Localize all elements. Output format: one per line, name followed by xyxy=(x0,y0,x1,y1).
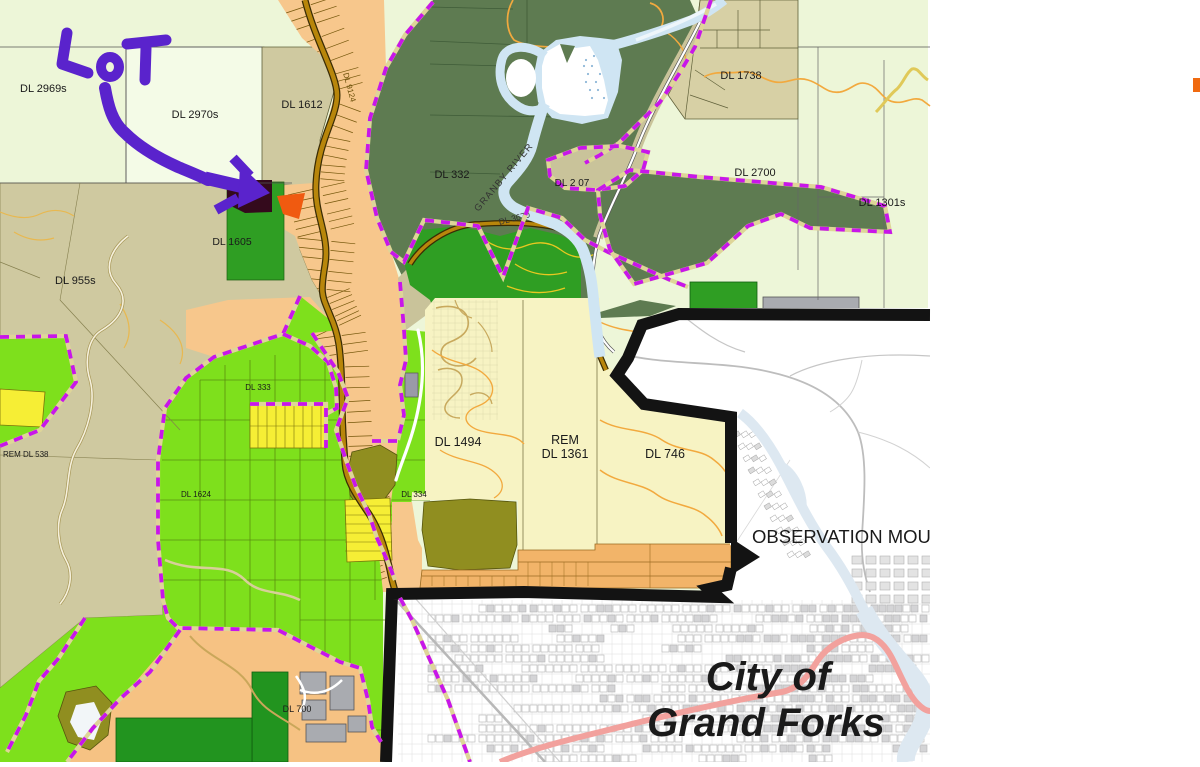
svg-text:DL 2 07: DL 2 07 xyxy=(555,178,590,189)
svg-text:DL 1605: DL 1605 xyxy=(212,236,251,248)
svg-text:DL 332: DL 332 xyxy=(434,169,469,181)
svg-text:City of: City of xyxy=(706,655,834,699)
svg-text:DL 2970s: DL 2970s xyxy=(172,109,219,121)
svg-text:DL 334: DL 334 xyxy=(401,490,427,499)
svg-text:REM DL 538: REM DL 538 xyxy=(3,450,49,459)
svg-text:DL 2969s: DL 2969s xyxy=(20,83,67,95)
svg-text:DL 1738: DL 1738 xyxy=(720,70,761,82)
svg-text:DL 1361: DL 1361 xyxy=(542,447,589,461)
svg-text:DL 333: DL 333 xyxy=(245,383,271,392)
svg-text:DL 955s: DL 955s xyxy=(55,275,96,287)
svg-text:DL 1612: DL 1612 xyxy=(281,99,322,111)
svg-text:DL 700: DL 700 xyxy=(283,704,312,714)
svg-text:DL 746: DL 746 xyxy=(645,447,685,461)
svg-text:DL 1494: DL 1494 xyxy=(435,435,482,449)
svg-text:Grand Forks: Grand Forks xyxy=(647,701,885,745)
svg-text:DL 1624: DL 1624 xyxy=(181,490,212,499)
svg-text:DL 2700: DL 2700 xyxy=(734,167,775,179)
svg-text:REM: REM xyxy=(551,433,579,447)
svg-text:DL 1301s: DL 1301s xyxy=(859,197,906,209)
